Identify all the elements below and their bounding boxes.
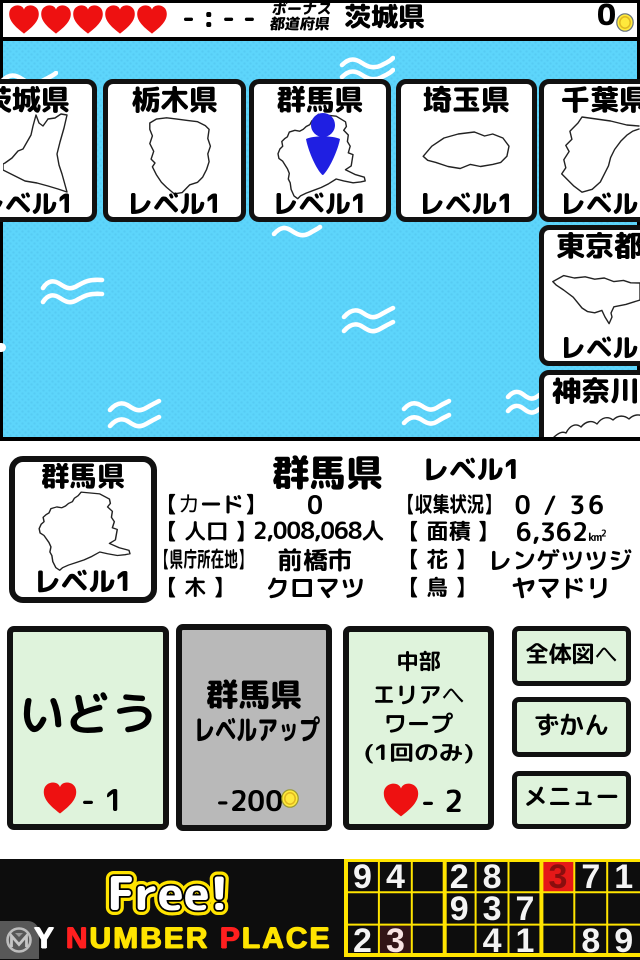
svg-text:8: 8 [581,922,600,957]
svg-text:9: 9 [450,890,469,928]
svg-text:9: 9 [353,859,372,896]
svg-text:3: 3 [386,922,405,957]
svg-text:2: 2 [353,922,372,957]
svg-text:Free!: Free! [107,864,228,922]
svg-text:4: 4 [483,922,502,957]
svg-text:9: 9 [614,922,633,957]
svg-text:4: 4 [386,859,405,896]
svg-text:1: 1 [614,859,633,896]
svg-text:7: 7 [581,859,600,896]
svg-text:1: 1 [516,922,535,957]
svg-text:3: 3 [548,859,567,896]
